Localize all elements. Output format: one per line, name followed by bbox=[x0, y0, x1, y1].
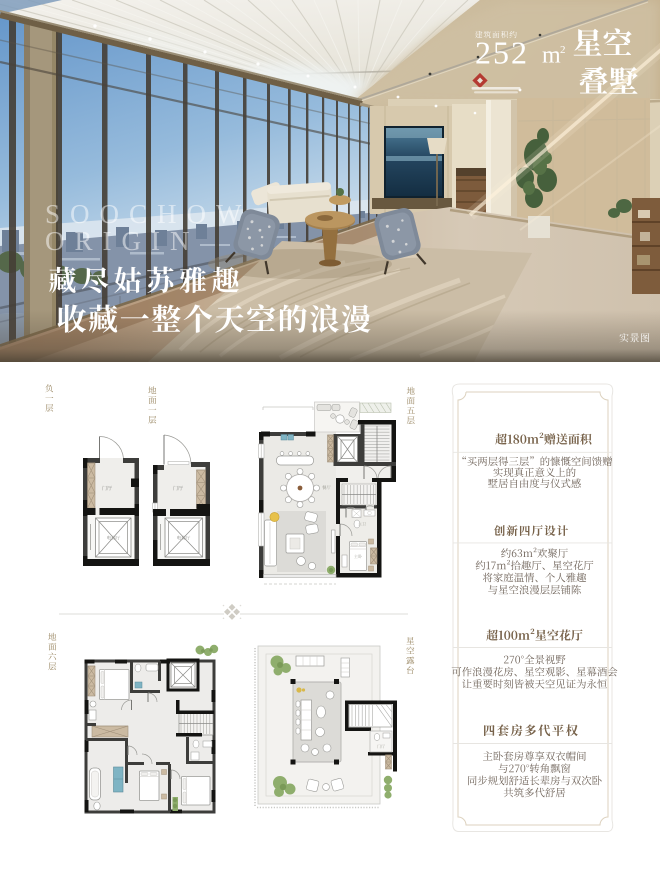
svg-text:m: m bbox=[542, 43, 561, 69]
svg-text:2: 2 bbox=[560, 44, 566, 56]
svg-text:ORIGIN: ORIGIN bbox=[45, 226, 200, 256]
svg-text:252: 252 bbox=[475, 35, 529, 71]
svg-text:SOOCHOW: SOOCHOW bbox=[45, 199, 252, 229]
